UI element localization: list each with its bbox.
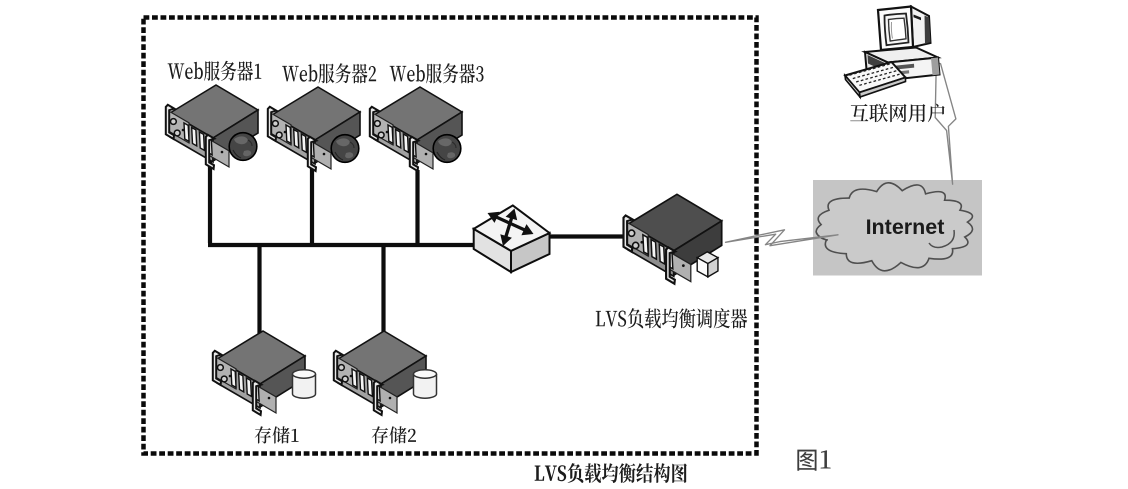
svg-text:Internet: Internet (866, 215, 945, 239)
